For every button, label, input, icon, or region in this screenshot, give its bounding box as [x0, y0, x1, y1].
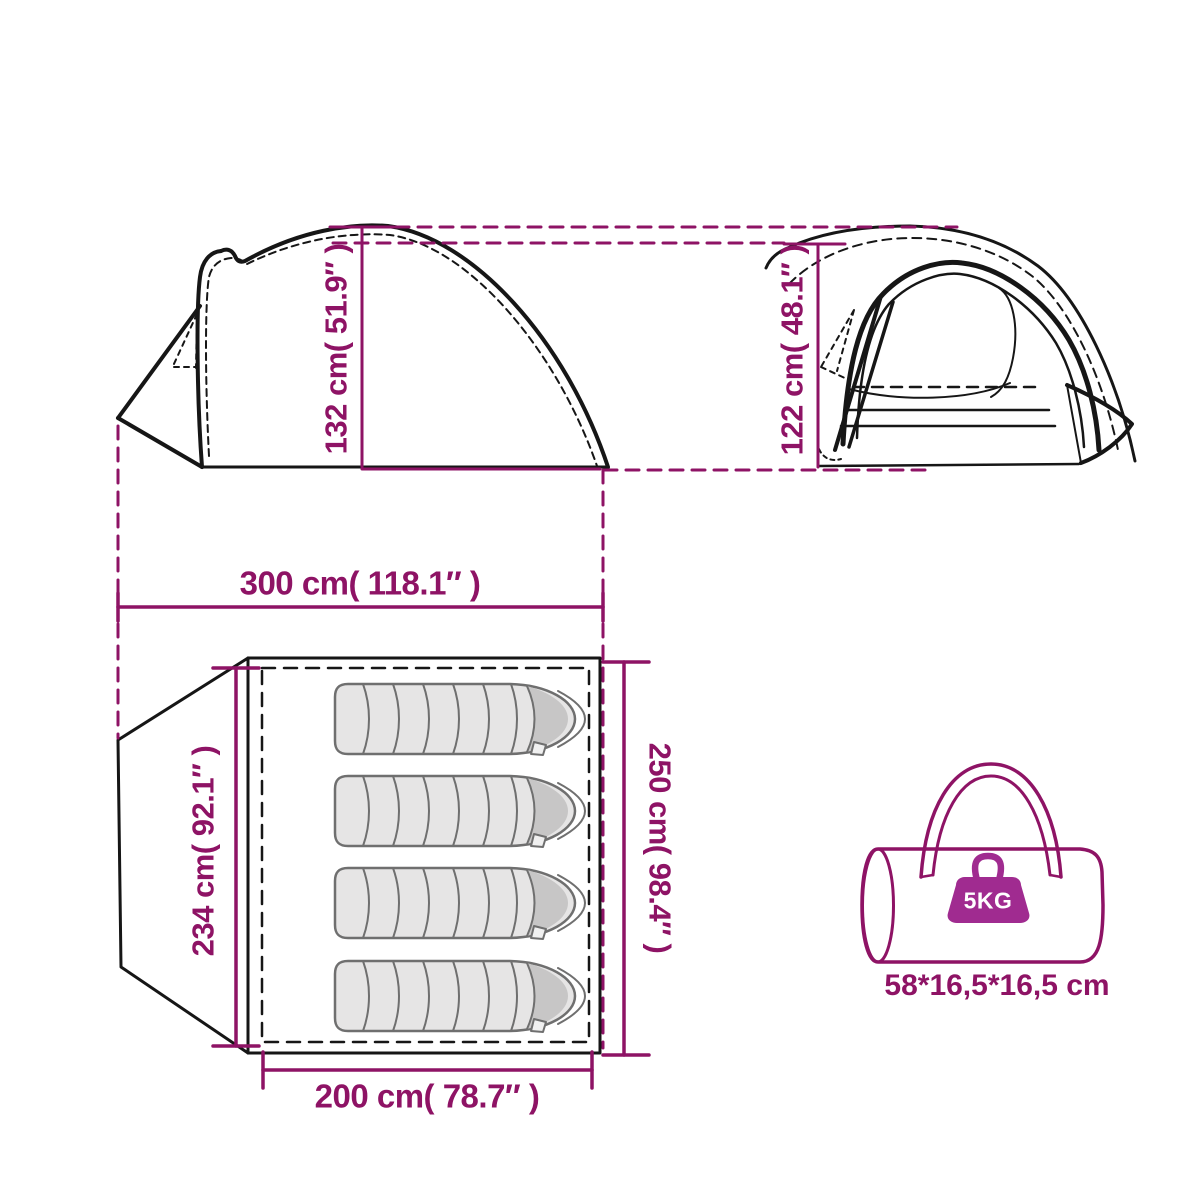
sleeping-bag-icon: [335, 776, 585, 847]
bag-size-label: 58*16,5*16,5 cm: [884, 971, 1109, 1001]
bag-weight-label: 5KG: [964, 890, 1013, 913]
sleeping-bag-icon: [335, 684, 585, 755]
floor-inner-length-label: 250 cm( 98.4″ ): [645, 743, 676, 954]
front-height-label: 122 cm( 48.1″ ): [777, 245, 808, 456]
floor-depth-label: 234 cm( 92.1″ ): [188, 746, 219, 957]
tent-front-view-drawing: [766, 226, 1135, 466]
carry-bag-icon: [862, 764, 1103, 962]
floor-inner-width-label: 200 cm( 78.7″ ): [315, 1080, 540, 1113]
sleeping-bag-icon: [335, 868, 585, 939]
side-height-label: 132 cm( 51.9″ ): [321, 244, 352, 455]
total-width-label: 300 cm( 118.1″ ): [240, 567, 481, 600]
product-dimension-diagram: 132 cm( 51.9″ ) 122 cm( 48.1″ ) 300 cm( …: [0, 0, 1200, 1200]
diagram-canvas: [0, 0, 1200, 1200]
sleeping-bag-icon: [335, 961, 585, 1032]
